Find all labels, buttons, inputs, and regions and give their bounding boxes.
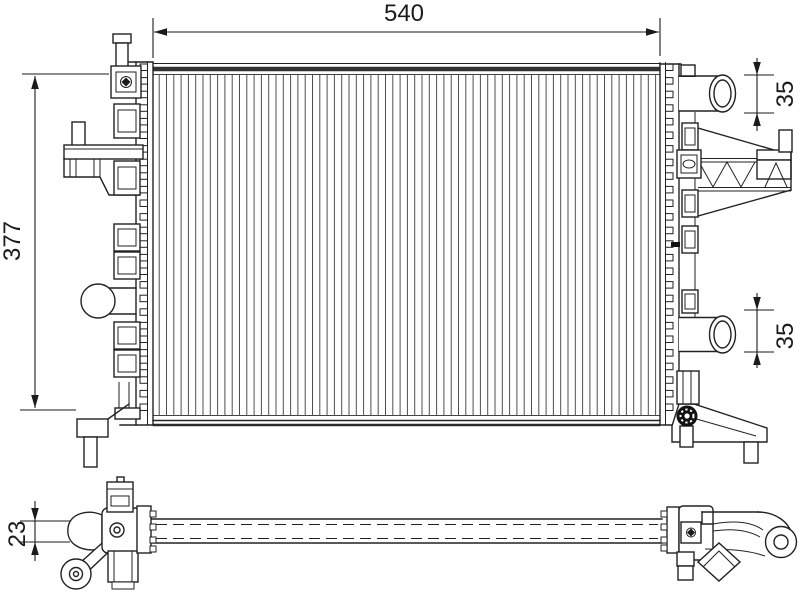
bracket-beam	[64, 145, 143, 159]
left-end-cap	[137, 506, 151, 553]
tank-tooth	[666, 105, 674, 112]
tank-tooth	[140, 377, 148, 384]
core-fins	[159, 75, 655, 415]
tank-tooth	[140, 214, 148, 221]
cap-tooth	[150, 511, 156, 517]
tank-tooth	[140, 118, 148, 125]
tank-tooth	[140, 322, 148, 329]
bottom-core-strip	[151, 519, 662, 543]
tank-tooth	[140, 200, 148, 207]
dimension-core-width: 540	[153, 0, 660, 58]
tank-tooth	[140, 404, 148, 411]
dimension-overall-height: 377	[0, 74, 109, 410]
left-sensor-boss	[81, 284, 136, 318]
tank-tooth	[140, 363, 148, 370]
filler-neck-pipe	[116, 43, 128, 67]
left-tank-teeth	[140, 64, 148, 411]
dimension-label-top-port: 35	[772, 81, 799, 108]
right-end-cap	[667, 507, 679, 553]
tank-tooth	[140, 309, 148, 316]
bracket-peg	[72, 122, 85, 146]
tank-tooth	[666, 254, 674, 261]
tank-tooth	[140, 350, 148, 357]
arrowhead	[31, 76, 39, 89]
tank-tooth	[666, 200, 674, 207]
truss-zigzag	[699, 162, 755, 187]
front-view	[64, 34, 792, 467]
tank-tooth	[666, 159, 674, 166]
tank-tooth	[140, 227, 148, 234]
tank-tooth	[140, 336, 148, 343]
tank-tooth	[140, 254, 148, 261]
tank-tooth	[666, 214, 674, 221]
tank-tooth	[666, 377, 674, 384]
dimension-label-core-depth: 23	[4, 521, 31, 548]
pipe-elbow-blob	[68, 512, 102, 550]
tank-tooth	[666, 64, 674, 71]
tank-tooth	[140, 132, 148, 139]
technical-drawing-canvas: 540 377 35 35 23	[0, 0, 800, 593]
tank-tooth	[666, 363, 674, 370]
tank-tooth	[666, 309, 674, 316]
outlet-pipe-bottom	[679, 316, 736, 353]
cap-tooth	[661, 524, 667, 530]
tank-tooth	[666, 173, 674, 180]
tank-tooth	[666, 282, 674, 289]
cap-tooth	[150, 537, 156, 543]
level-mark	[671, 242, 680, 247]
arrowhead	[753, 62, 761, 75]
pipe-opening-inner	[714, 80, 731, 107]
dimension-bottom-pipe: 35	[744, 293, 799, 368]
right-tank-teeth	[666, 64, 674, 411]
tank-tooth	[666, 78, 674, 85]
dimension-label-core-width: 540	[384, 0, 424, 27]
arrowhead	[753, 113, 761, 126]
tank-tooth	[140, 241, 148, 248]
tank-tooth	[140, 105, 148, 112]
tank-tab	[681, 65, 695, 77]
right-truss-bracket	[698, 128, 792, 216]
cap-tooth	[661, 537, 667, 543]
bottom-right-assembly	[661, 506, 797, 581]
cap-tooth	[150, 546, 156, 552]
pipe-ring-inner	[774, 535, 788, 549]
tank-tooth	[666, 227, 674, 234]
tank-tooth	[666, 350, 674, 357]
radiator-drawing: 540 377 35 35 23	[0, 0, 800, 593]
tank-tooth	[666, 132, 674, 139]
arrowhead	[31, 395, 39, 408]
tank-tooth	[666, 268, 674, 275]
tank-tooth	[140, 173, 148, 180]
foot-peg	[744, 442, 758, 463]
tank-tooth	[666, 91, 674, 98]
tank-tooth	[140, 282, 148, 289]
tank-tooth	[140, 390, 148, 397]
arrowhead	[31, 508, 39, 521]
cap-tooth	[661, 511, 667, 517]
arrowhead	[31, 542, 39, 555]
foot-block	[77, 419, 108, 437]
tank-tooth	[666, 390, 674, 397]
arrowhead	[154, 28, 167, 36]
tank-tooth	[666, 336, 674, 343]
filler-neck-rim	[113, 34, 131, 43]
tank-tooth	[140, 186, 148, 193]
tank-tooth	[666, 186, 674, 193]
tank-tooth	[666, 295, 674, 302]
left-upper-mount-bracket	[111, 66, 141, 98]
dimension-core-depth: 23	[4, 501, 70, 561]
arrowhead	[753, 352, 761, 365]
tank-tooth	[140, 295, 148, 302]
cap-tooth	[150, 524, 156, 530]
foot-peg	[84, 437, 97, 467]
bottom-right-cap-teeth	[661, 511, 667, 551]
dimension-label-overall-height: 377	[0, 221, 26, 261]
pipe-opening-inner	[714, 321, 731, 348]
cap-tooth	[661, 545, 667, 551]
tank-tooth	[666, 322, 674, 329]
boss-circle	[81, 284, 115, 318]
dimension-top-pipe: 35	[744, 58, 799, 131]
arrowhead	[646, 28, 659, 36]
bottom-left-assembly	[61, 477, 156, 589]
bottom-view	[61, 477, 797, 589]
radiator-core	[153, 63, 660, 425]
tank-tooth	[666, 146, 674, 153]
arrowhead	[753, 297, 761, 310]
tank-tooth	[666, 404, 674, 411]
truss-peg	[779, 130, 792, 152]
inlet-pipe-top	[679, 75, 736, 112]
drain-bracket	[677, 371, 699, 404]
tank-tooth	[140, 268, 148, 275]
dimension-label-bottom-port: 35	[772, 323, 799, 350]
filler-neck	[113, 34, 131, 67]
right-bottom-foot	[672, 371, 767, 463]
tank-tooth	[666, 118, 674, 125]
tank-tooth	[140, 159, 148, 166]
